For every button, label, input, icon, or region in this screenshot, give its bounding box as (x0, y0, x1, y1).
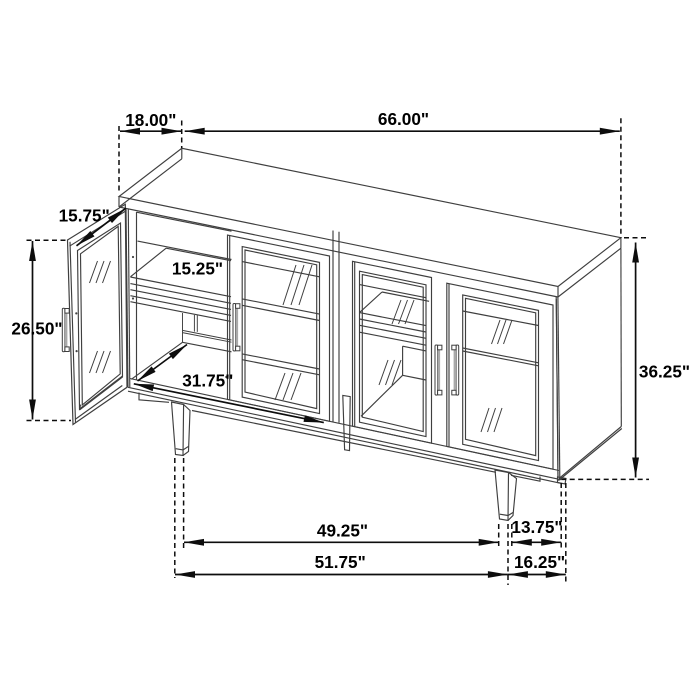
svg-text:36.25": 36.25" (639, 362, 690, 382)
svg-text:18.00": 18.00" (125, 110, 176, 130)
svg-text:16.25": 16.25" (514, 552, 565, 572)
svg-text:15.75": 15.75" (59, 206, 110, 226)
svg-text:26.50": 26.50" (11, 319, 62, 339)
svg-text:66.00": 66.00" (378, 109, 429, 129)
svg-text:51.75": 51.75" (315, 552, 366, 572)
svg-text:15.25": 15.25" (172, 258, 223, 278)
svg-text:49.25": 49.25" (317, 521, 368, 541)
svg-text:31.75": 31.75" (182, 371, 233, 391)
svg-text:13.75": 13.75" (511, 517, 562, 537)
